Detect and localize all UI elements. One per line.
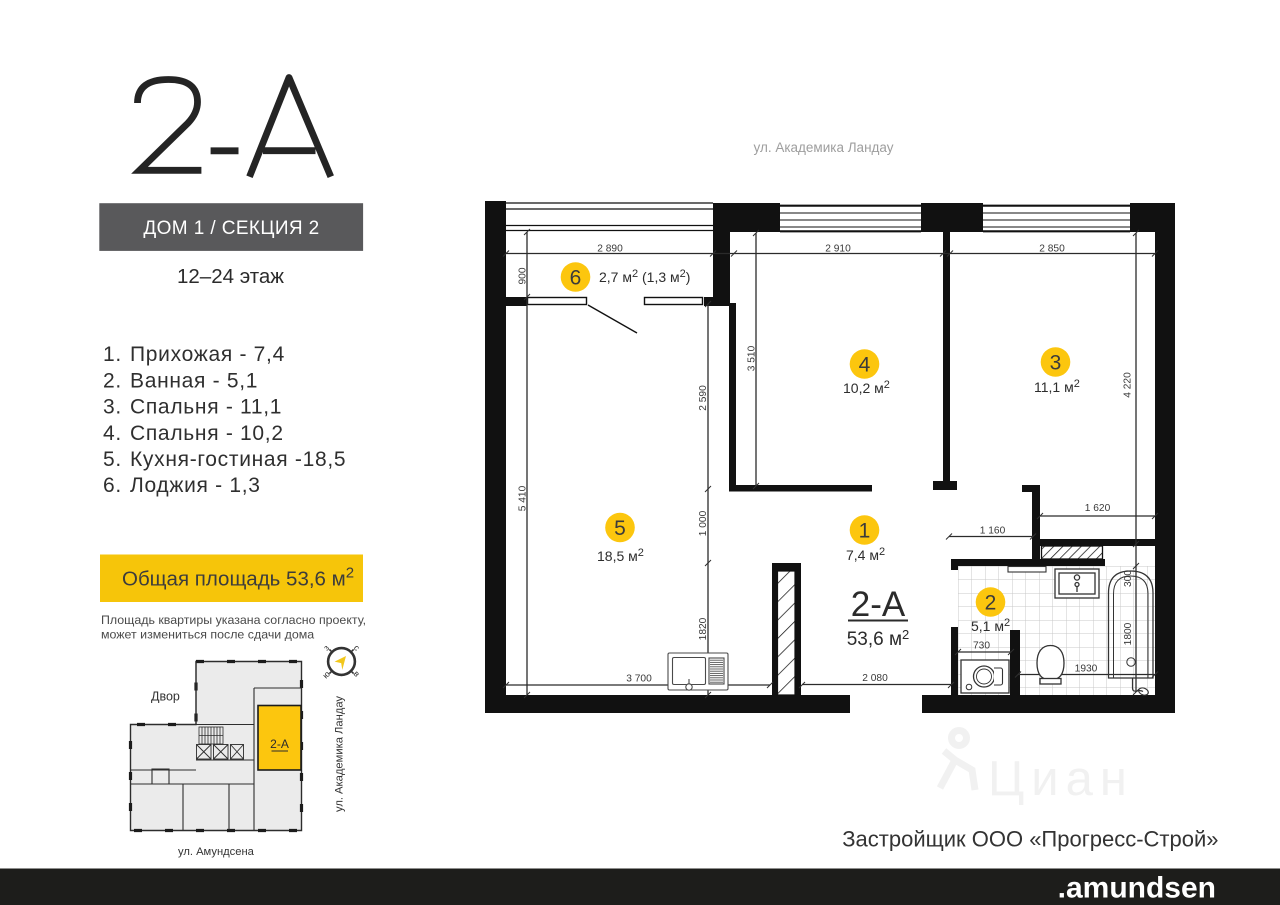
svg-text:з: з xyxy=(321,643,331,653)
svg-text:900: 900 xyxy=(518,267,529,284)
svg-text:5 410: 5 410 xyxy=(518,485,529,511)
svg-text:2.Ванная - 5,1: 2.Ванная - 5,1 xyxy=(103,369,258,392)
svg-text:1820: 1820 xyxy=(698,617,709,640)
svg-text:3.Спальня - 11,1: 3.Спальня - 11,1 xyxy=(103,396,282,419)
svg-text:2 910: 2 910 xyxy=(825,244,851,255)
svg-text:2,7 м2 (1,3 м2): 2,7 м2 (1,3 м2) xyxy=(599,268,690,285)
svg-text:ДОМ 1 / СЕКЦИЯ 2: ДОМ 1 / СЕКЦИЯ 2 xyxy=(143,218,319,239)
svg-text:300: 300 xyxy=(1123,570,1134,587)
svg-text:Двор: Двор xyxy=(151,690,180,704)
svg-text:1: 1 xyxy=(859,520,871,543)
svg-text:6: 6 xyxy=(570,267,582,290)
svg-text:2 080: 2 080 xyxy=(862,673,888,684)
svg-text:7,4 м2: 7,4 м2 xyxy=(846,546,885,563)
svg-text:Площадь квартиры указана согла: Площадь квартиры указана согласно проект… xyxy=(101,613,366,627)
svg-text:10,2 м2: 10,2 м2 xyxy=(843,379,890,396)
svg-text:3 510: 3 510 xyxy=(747,345,758,371)
svg-text:6.Лоджия - 1,3: 6.Лоджия - 1,3 xyxy=(103,474,261,497)
svg-text:ул. Академика Ландау: ул. Академика Ландау xyxy=(753,140,893,155)
svg-text:2-А: 2-А xyxy=(270,737,289,751)
svg-text:1800: 1800 xyxy=(1123,622,1134,645)
svg-text:18,5 м2: 18,5 м2 xyxy=(597,547,644,564)
svg-text:5.Кухня-гостиная -18,5: 5.Кухня-гостиная -18,5 xyxy=(103,448,346,471)
svg-text:3 700: 3 700 xyxy=(626,674,652,685)
svg-text:730: 730 xyxy=(973,641,990,652)
svg-text:4: 4 xyxy=(859,354,871,377)
svg-text:может измениться после сдачи д: может измениться после сдачи дома xyxy=(101,628,314,642)
svg-text:4 220: 4 220 xyxy=(1123,372,1134,398)
svg-text:2 890: 2 890 xyxy=(597,244,623,255)
svg-text:4.Спальня - 10,2: 4.Спальня - 10,2 xyxy=(103,422,284,445)
svg-text:ул. Амундсена: ул. Амундсена xyxy=(178,846,255,858)
svg-text:2: 2 xyxy=(985,592,997,615)
svg-text:.amundsen: .amundsen xyxy=(1058,872,1216,905)
svg-text:Застройщик ООО «Прогресс-Строй: Застройщик ООО «Прогресс-Строй» xyxy=(842,827,1218,852)
svg-text:11,1 м2: 11,1 м2 xyxy=(1034,378,1080,395)
svg-text:Общая площадь 53,6 м2: Общая площадь 53,6 м2 xyxy=(122,565,354,591)
svg-text:2-А: 2-А xyxy=(851,585,906,624)
svg-text:5: 5 xyxy=(614,517,626,540)
svg-text:53,6 м2: 53,6 м2 xyxy=(847,627,910,650)
svg-text:12–24 этаж: 12–24 этаж xyxy=(177,265,284,288)
svg-text:2 590: 2 590 xyxy=(698,385,709,411)
svg-text:1 160: 1 160 xyxy=(980,526,1006,537)
svg-text:2 850: 2 850 xyxy=(1039,244,1065,255)
svg-text:3: 3 xyxy=(1050,352,1062,375)
svg-text:ул. Академика Ландау: ул. Академика Ландау xyxy=(334,696,346,812)
svg-text:с: с xyxy=(352,643,363,654)
svg-text:Циан: Циан xyxy=(988,752,1134,806)
svg-text:1 000: 1 000 xyxy=(698,510,709,536)
svg-text:1.Прихожая - 7,4: 1.Прихожая - 7,4 xyxy=(103,343,285,366)
svg-text:1930: 1930 xyxy=(1075,664,1098,675)
svg-text:1 620: 1 620 xyxy=(1085,503,1111,514)
